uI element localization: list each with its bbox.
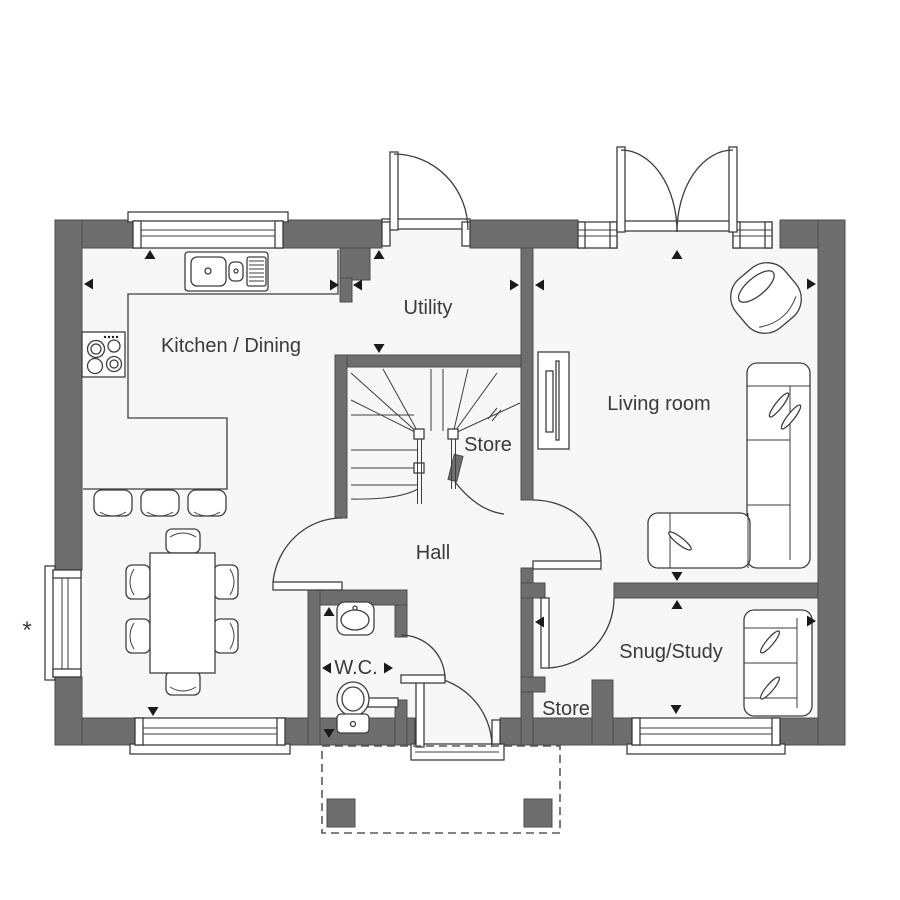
wall-living-left	[521, 248, 533, 500]
dining-chair	[166, 671, 200, 695]
wall-snug-top-left	[521, 583, 545, 598]
room-label-store-hall: Store	[542, 698, 590, 720]
wall-wc-left	[308, 590, 320, 745]
newel-post	[448, 429, 458, 439]
floorplan: Kitchen / Dining Utility Living room Sto…	[0, 0, 900, 900]
room-label-living-room: Living room	[607, 393, 710, 415]
wall-stairs-top	[335, 355, 521, 367]
dining-chair	[126, 565, 150, 599]
toilet	[337, 682, 369, 733]
bar-stools	[94, 490, 226, 516]
living-sidelight-left	[578, 222, 617, 248]
room-label-wc: W.C.	[334, 657, 377, 679]
wall-kitchen-utility	[340, 248, 370, 280]
window-note-asterisk: *	[22, 617, 31, 644]
porch-post	[327, 799, 355, 827]
dining-chair	[214, 565, 238, 599]
porch-post	[524, 799, 552, 827]
newel-post	[414, 429, 424, 439]
newel-post	[414, 463, 424, 473]
dining-table	[150, 553, 215, 673]
room-label-snug-study: Snug/Study	[619, 641, 722, 663]
dining-chair	[214, 619, 238, 653]
wall-snug-top	[614, 583, 818, 598]
room-label-kitchen-dining: Kitchen / Dining	[161, 335, 301, 357]
floorplan-drawing: Kitchen / Dining Utility Living room Sto…	[0, 0, 900, 900]
kitchen-window	[128, 212, 288, 248]
dining-window	[130, 718, 290, 754]
dining-chair	[166, 529, 200, 553]
room-label-utility: Utility	[404, 297, 453, 319]
room-label-store-under-stairs: Store	[464, 434, 512, 456]
side-window	[45, 566, 81, 680]
wall-wc-right	[395, 605, 407, 637]
tv-unit	[538, 352, 569, 449]
basin	[337, 602, 374, 635]
wall-return	[368, 698, 398, 707]
sink	[185, 252, 268, 291]
french-doors	[617, 147, 737, 232]
wall-stairs-left	[335, 355, 347, 518]
room-label-hall: Hall	[416, 542, 450, 564]
living-sidelight-right	[733, 222, 772, 248]
snug-sofa	[744, 610, 812, 716]
snug-window	[627, 718, 785, 754]
hob	[82, 332, 125, 377]
wall-store-left	[521, 598, 533, 745]
dining-chair	[126, 619, 150, 653]
wall-store-right	[592, 680, 613, 745]
